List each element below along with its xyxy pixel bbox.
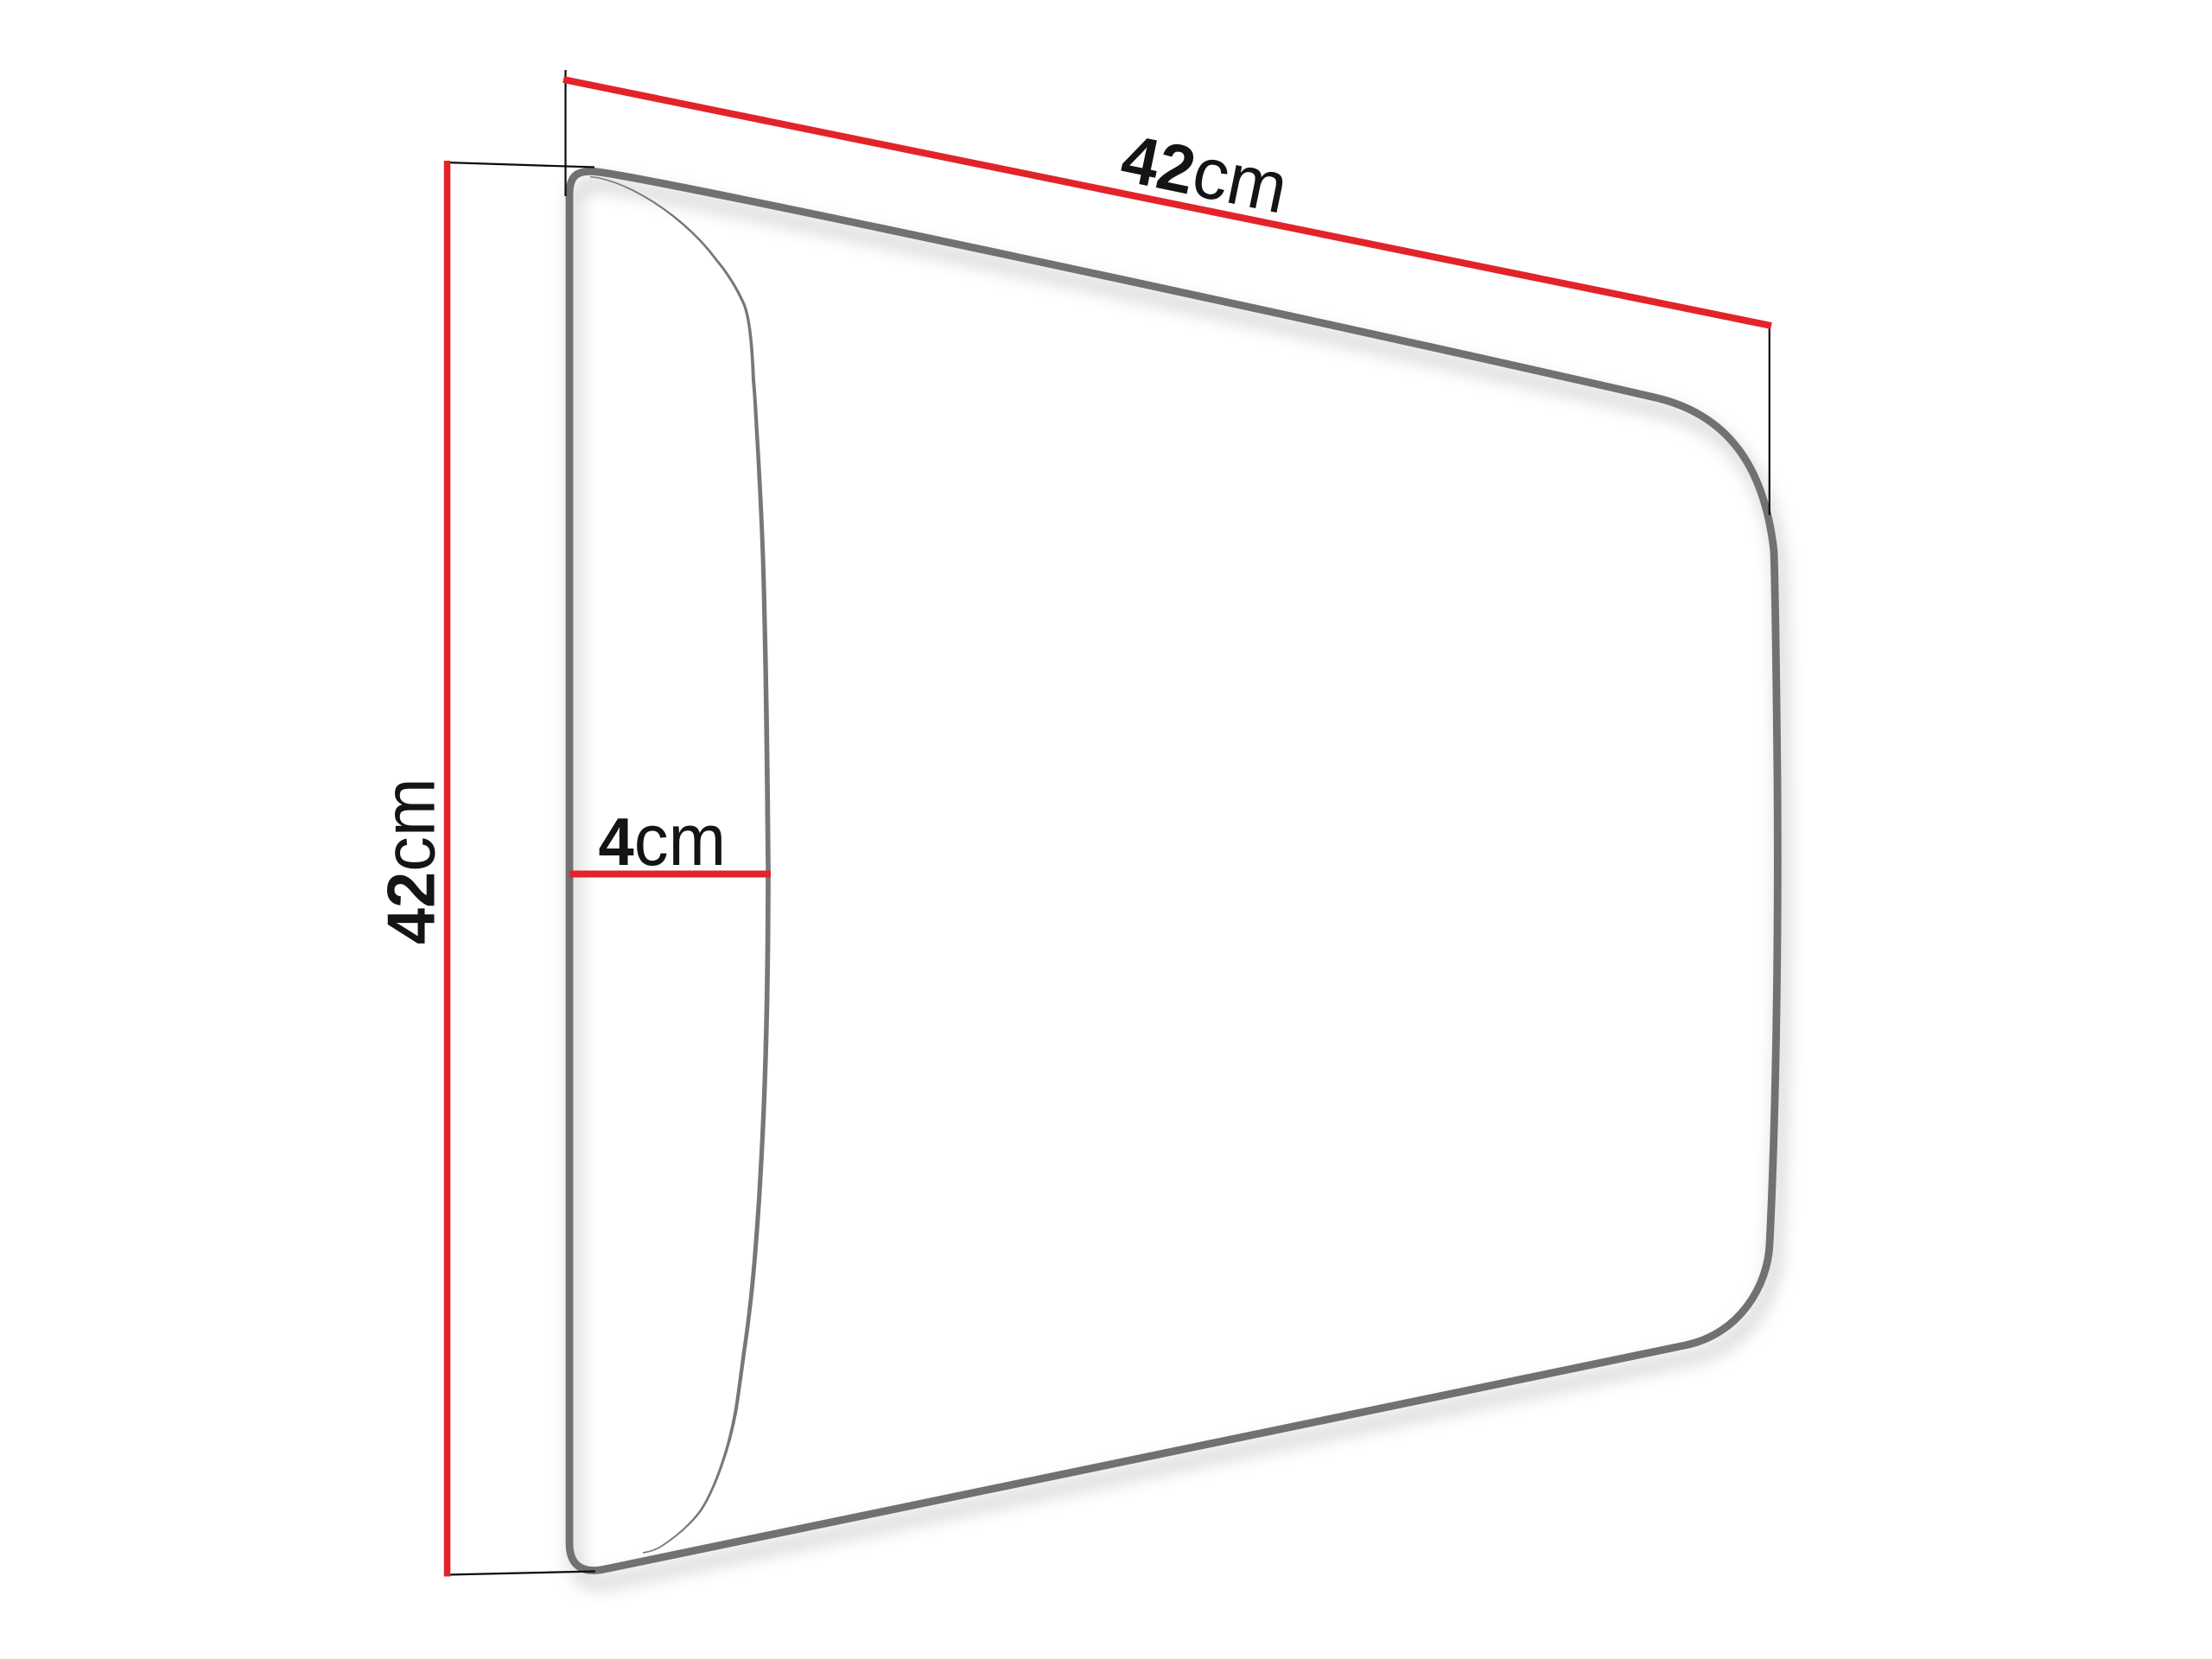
svg-text:42cm: 42cm [368, 778, 449, 944]
svg-text:4cm: 4cm [599, 800, 727, 880]
